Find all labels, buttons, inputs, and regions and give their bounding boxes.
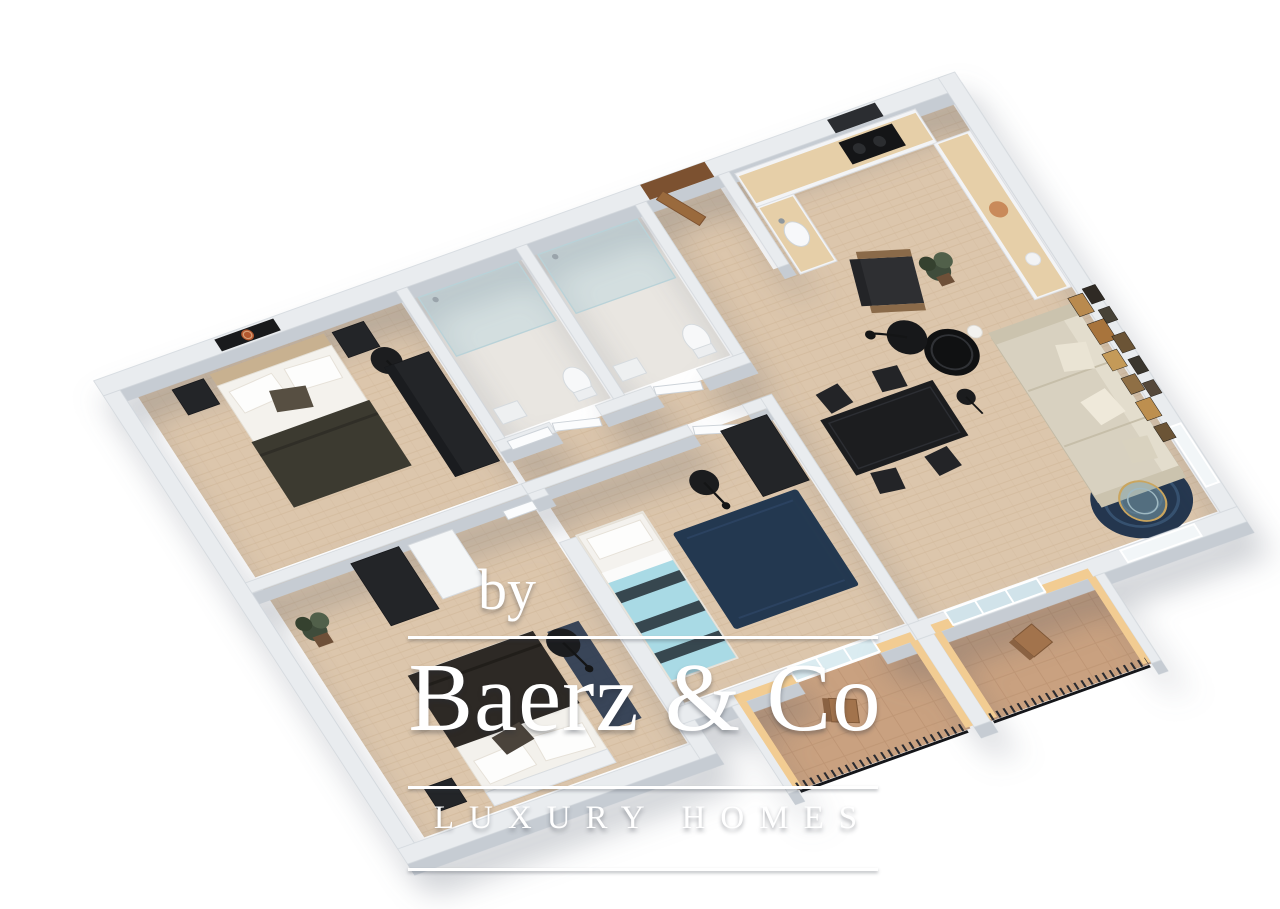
floorplan-render bbox=[0, 0, 1280, 909]
floorplan-page: by Baerz & Co LUXURY HOMES bbox=[0, 0, 1280, 909]
watermark-tagline: LUXURY HOMES bbox=[408, 800, 890, 837]
watermark-divider bbox=[408, 868, 878, 871]
watermark-divider bbox=[408, 786, 878, 789]
watermark-by: by bbox=[408, 556, 952, 623]
watermark-divider bbox=[408, 636, 878, 639]
watermark-brand: Baerz & Co bbox=[408, 642, 882, 753]
